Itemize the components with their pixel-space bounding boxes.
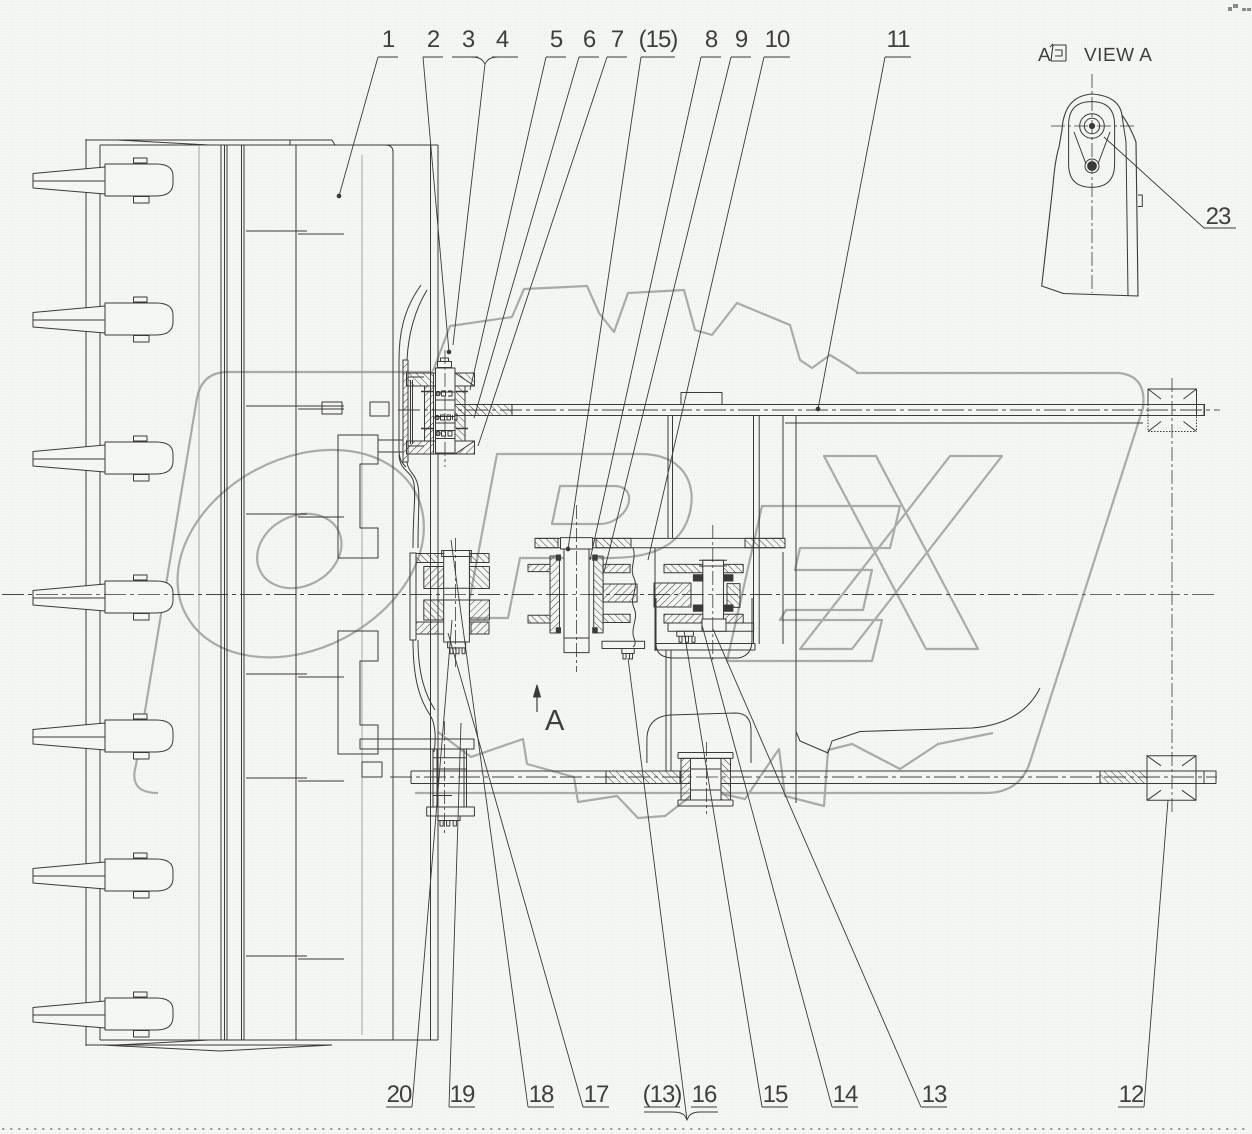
svg-text:6: 6 xyxy=(583,26,596,53)
svg-text:9: 9 xyxy=(735,26,748,53)
svg-text:4: 4 xyxy=(496,26,509,53)
svg-text:VIEW A: VIEW A xyxy=(1084,45,1152,66)
svg-text:8: 8 xyxy=(705,26,718,53)
svg-text:19: 19 xyxy=(450,1081,475,1108)
svg-text:17: 17 xyxy=(584,1081,609,1108)
svg-text:A: A xyxy=(1038,45,1051,66)
svg-text:23: 23 xyxy=(1206,203,1231,230)
svg-text:3: 3 xyxy=(462,26,475,53)
svg-text:10: 10 xyxy=(765,26,790,53)
svg-text:14: 14 xyxy=(833,1081,858,1108)
svg-text:16: 16 xyxy=(692,1081,717,1108)
svg-text:13: 13 xyxy=(922,1081,947,1108)
svg-text:1: 1 xyxy=(382,26,395,53)
svg-text:A: A xyxy=(545,705,565,737)
svg-text:20: 20 xyxy=(387,1081,412,1108)
svg-text:11: 11 xyxy=(887,26,911,53)
svg-text:18: 18 xyxy=(529,1081,554,1108)
svg-text:5: 5 xyxy=(550,26,563,53)
svg-text:(15): (15) xyxy=(639,26,678,53)
svg-text:12: 12 xyxy=(1119,1081,1144,1108)
svg-text:15: 15 xyxy=(763,1081,788,1108)
svg-text:7: 7 xyxy=(611,26,624,53)
svg-text:(13): (13) xyxy=(643,1081,682,1108)
svg-text:2: 2 xyxy=(427,26,440,53)
